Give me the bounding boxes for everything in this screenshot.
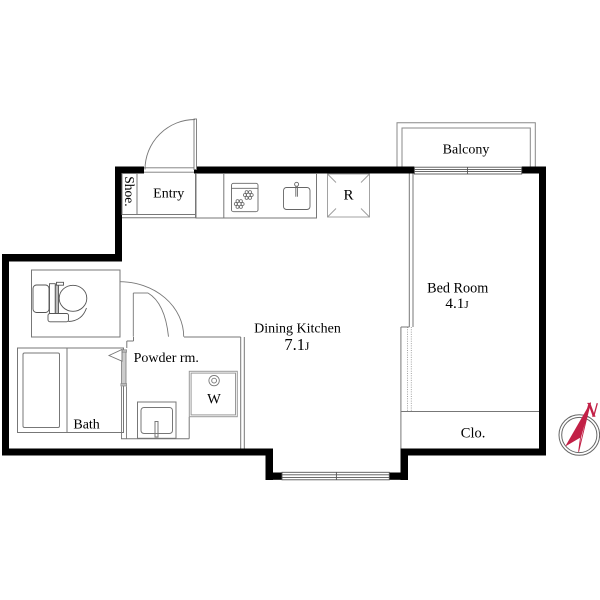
svg-text:R: R (343, 188, 353, 204)
svg-text:Clo.: Clo. (461, 426, 486, 442)
svg-text:W: W (207, 392, 221, 408)
svg-text:Powder rm.: Powder rm. (134, 351, 199, 366)
svg-text:Balcony: Balcony (443, 143, 490, 158)
svg-text:Shoe.: Shoe. (122, 176, 137, 206)
svg-text:Bath: Bath (73, 418, 99, 433)
svg-text:Entry: Entry (153, 187, 184, 202)
